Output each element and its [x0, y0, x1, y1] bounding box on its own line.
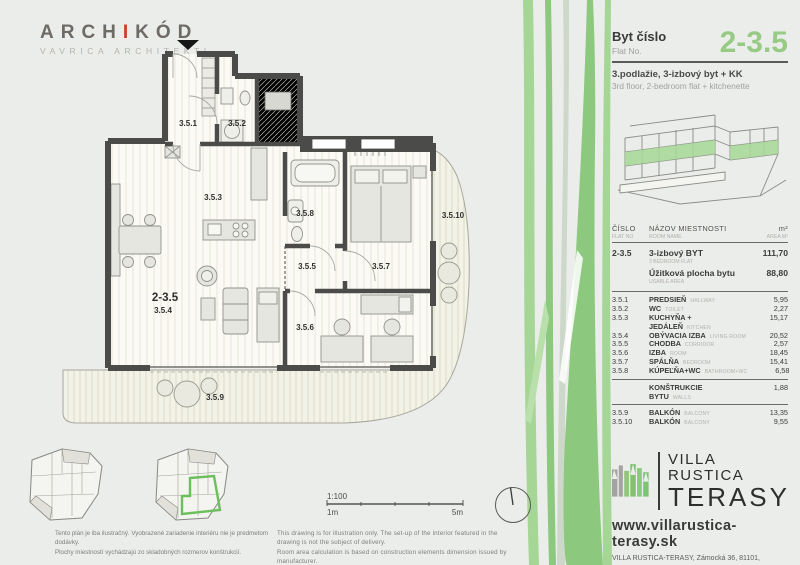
highlighted-floor	[625, 140, 715, 166]
site-plan-thumbnails	[14, 442, 254, 530]
flat-number-title-en: Flat No.	[612, 46, 666, 56]
summary-flat-no: 2-3.5	[612, 248, 649, 258]
col-room-name-en: ROOM NAME	[649, 234, 746, 240]
niche-2	[361, 139, 395, 149]
brand-block: VILLA RUSTICA TERASY www.villarustica-te…	[612, 452, 790, 565]
scale-start-label: 1m	[327, 508, 338, 517]
site-thumbnail-1	[30, 449, 102, 520]
scale-ratio: 1:100	[327, 492, 348, 501]
walls-row: KONŠTRUKCIE BYTUWALLS 1,88	[612, 379, 788, 405]
brand-website: www.villarustica-terasy.sk	[612, 518, 790, 550]
brand-address-line: VILLA RUSTICA-TERASY, Zámocká 36, 81101,…	[612, 554, 790, 565]
entrance-arrow	[177, 40, 199, 50]
balcony-rows: 3.5.9BALKÓNBALCONY13,35 3.5.10BALKÓNBALC…	[612, 405, 788, 430]
disclaimer-en-line1: This drawing is for illustration only. T…	[277, 529, 522, 548]
disclaimer-en: This drawing is for illustration only. T…	[277, 529, 522, 565]
room-label-bedroom: 3.5.7	[372, 262, 390, 271]
floor-plan-drawing: 3.5.1 3.5.2 3.5.3 2-3.5 3.5.4 3.5.5 3.5.…	[55, 36, 525, 448]
villa-rustica-trees-icon	[612, 456, 650, 506]
table-row: 3.5.2WCTOILET2,27	[612, 305, 788, 314]
highlighted-floor-wing	[730, 140, 778, 160]
room-label-room: 3.5.6	[296, 323, 314, 332]
green-grass-decoration	[515, 0, 615, 565]
flat-number-label: 2-3.5	[152, 292, 179, 304]
summary-usable-label-en: USABLE AREA	[649, 279, 746, 285]
brand-address: VILLA RUSTICA-TERASY, Zámocká 36, 81101,…	[612, 554, 790, 565]
header-rule	[612, 61, 788, 63]
summary-usable-area: 88,80	[746, 268, 788, 278]
room-label-living: 3.5.4	[154, 306, 172, 315]
niche-1	[312, 139, 346, 149]
room-label-bathroom: 3.5.8	[296, 209, 314, 218]
flat-number-title-sk: Byt číslo	[612, 30, 666, 44]
col-area: m²	[746, 224, 788, 233]
table-row: 3.5.9BALKÓNBALCONY13,35	[612, 408, 788, 417]
flat-header: Byt číslo Flat No. 2-3.5 3.podlažie, 3-i…	[612, 30, 788, 91]
scale-end-label: 5m	[452, 508, 463, 517]
disclaimer-sk: Tento plán je iba ilustračný. Vyobrazené…	[55, 529, 270, 557]
brand-name-line1: VILLA RUSTICA	[668, 452, 790, 484]
disclaimer-sk-line1: Tento plán je iba ilustračný. Vyobrazené…	[55, 529, 270, 548]
table-row: 3.5.3KUCHYŇA + JEDÁLEŇKITCHEN15,17	[612, 314, 788, 332]
table-summary: 2-3.5 3-izbový BYT 111,70 3 BEDROOM FLAT…	[612, 243, 788, 292]
table-row: 3.5.1PREDSIEŇHALLWAY5,95	[612, 296, 788, 305]
table-row: 3.5.10BALKÓNBALCONY9,55	[612, 417, 788, 426]
table-row: 3.5.4OBÝVACIA IZBALIVING ROOM20,52	[612, 332, 788, 341]
flat-number-value: 2-3.5	[720, 30, 788, 56]
flat-description-en: 3rd floor, 2-bedroom flat + kitchenette	[612, 81, 788, 91]
room-label-corridor: 3.5.5	[298, 262, 316, 271]
duct	[265, 92, 291, 110]
summary-total-area: 111,70	[746, 248, 788, 258]
table-row: 3.5.5CHODBACORRIDOR2,57	[612, 340, 788, 349]
summary-usable-label: Úžitková plocha bytu	[649, 268, 746, 278]
disclaimer-en-line2: Room area calculation is based on constr…	[277, 548, 522, 565]
col-flat-no-en: FLAT NO	[612, 234, 649, 240]
brand-name-line2: TERASY	[668, 484, 790, 510]
furniture-hall	[202, 58, 215, 116]
table-header: ČÍSLO FLAT NO NÁZOV MIESTNOSTI ROOM NAME…	[612, 224, 788, 243]
room-rows: 3.5.1PREDSIEŇHALLWAY5,95 3.5.2WCTOILET2,…	[612, 292, 788, 379]
disclaimer-sk-line2: Plochy miestností vychádzajú zo skladobn…	[55, 548, 270, 557]
room-label-balcony2: 3.5.10	[442, 211, 465, 220]
flat-description-sk: 3.podlažie, 3-izbový byt + KK	[612, 69, 788, 80]
room-label-wc: 3.5.2	[228, 119, 246, 128]
area-table: ČÍSLO FLAT NO NÁZOV MIESTNOSTI ROOM NAME…	[612, 224, 788, 430]
walls-label-en: WALLS	[673, 395, 691, 401]
table-row: 3.5.8KÚPEĽŇA+WCBATHROOM+WC6,58	[612, 367, 788, 376]
col-room-name: NÁZOV MIESTNOSTI	[649, 224, 746, 233]
brand-name: VILLA RUSTICA TERASY	[658, 452, 790, 510]
walls-area: 1,88	[746, 383, 788, 392]
col-area-en: AREA M²	[746, 234, 788, 240]
room-label-balcony1: 3.5.9	[206, 393, 224, 402]
scale-bar: 1:100 1m 5m	[325, 492, 475, 518]
room-label-hall: 3.5.1	[179, 119, 197, 128]
table-row: 3.5.6IZBAROOM18,45	[612, 349, 788, 358]
summary-flat-type-en: 3 BEDROOM FLAT	[649, 259, 746, 265]
room-label-kitchen: 3.5.3	[204, 193, 222, 202]
building-sketch	[610, 90, 790, 218]
col-flat-no: ČÍSLO	[612, 224, 649, 233]
floorplan-sheet: ARCHIKÓD VAVRICA ARCHITEKTI	[0, 0, 800, 565]
north-compass-icon	[490, 482, 536, 528]
summary-flat-type: 3-izbový BYT	[649, 248, 746, 258]
